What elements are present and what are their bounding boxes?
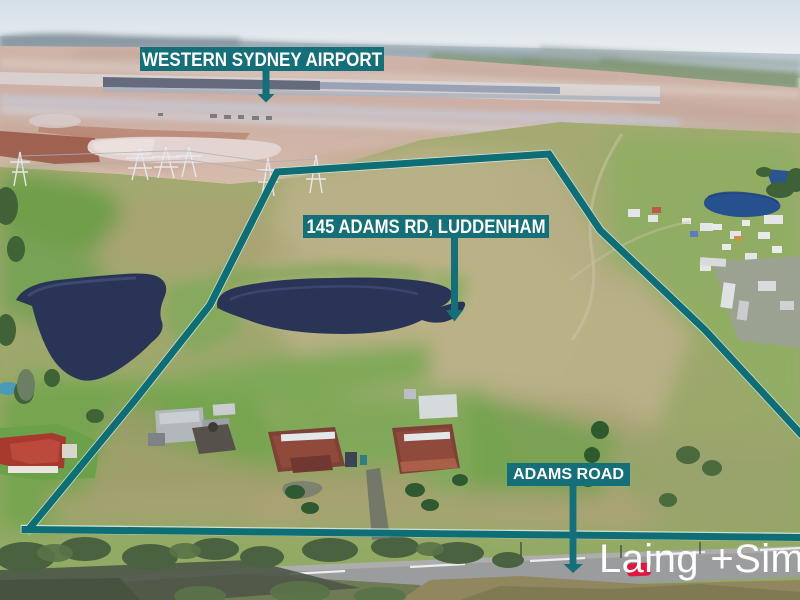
svg-text:WESTERN SYDNEY AIRPORT: WESTERN SYDNEY AIRPORT [142, 49, 382, 71]
svg-text:ADAMS ROAD: ADAMS ROAD [513, 466, 624, 483]
svg-text:Laing +Simmons: Laing +Simmons [599, 537, 800, 581]
svg-text:145 ADAMS RD, LUDDENHAM: 145 ADAMS RD, LUDDENHAM [307, 216, 546, 238]
